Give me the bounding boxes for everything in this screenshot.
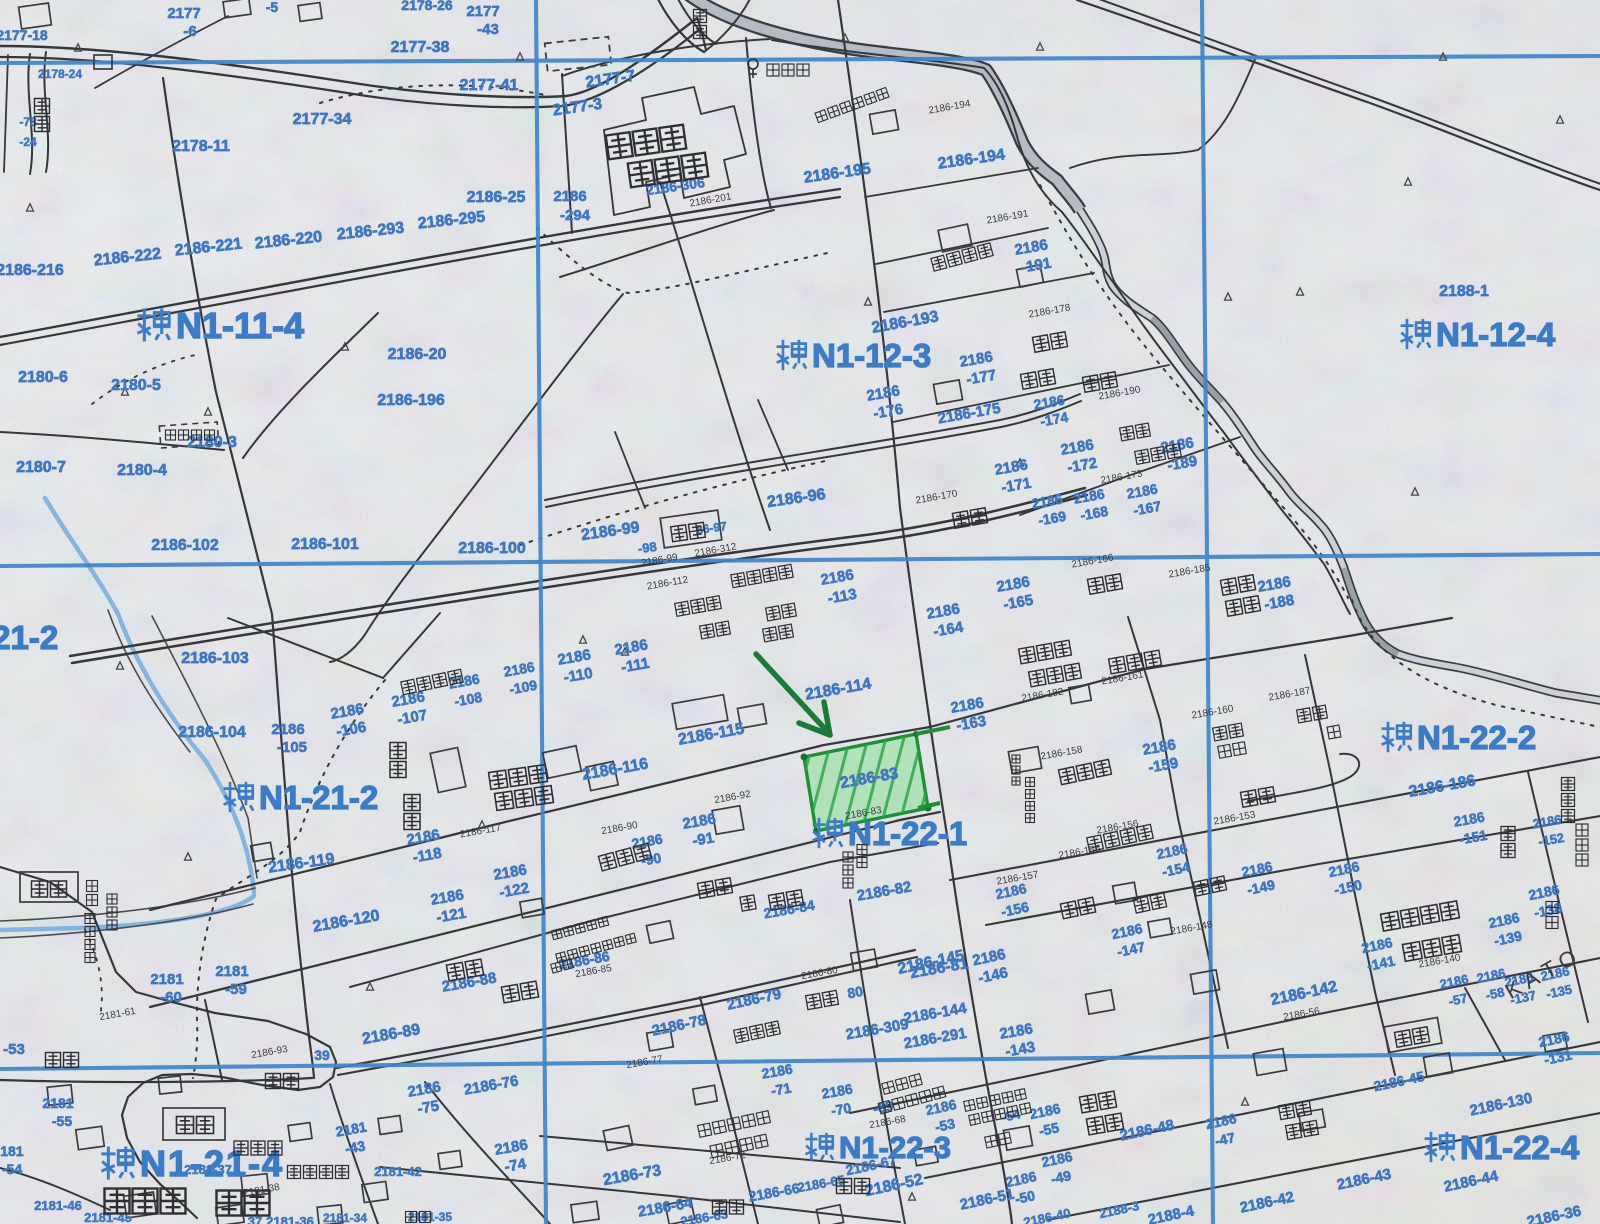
svg-text:2181-45: 2181-45 <box>84 1210 132 1224</box>
svg-text:2177-18: 2177-18 <box>0 27 48 43</box>
svg-text:-43: -43 <box>477 21 499 38</box>
svg-text:2180-5: 2180-5 <box>111 377 161 394</box>
svg-text:2181-36: 2181-36 <box>266 1214 314 1224</box>
svg-text:2181: 2181 <box>42 1095 73 1111</box>
svg-text:N1-12-4: N1-12-4 <box>1436 316 1556 353</box>
svg-text:2186: 2186 <box>271 721 304 738</box>
svg-text:2186-103: 2186-103 <box>181 650 249 667</box>
svg-text:2186-216: 2186-216 <box>0 262 64 279</box>
svg-text:2181: 2181 <box>0 1143 24 1159</box>
svg-text:2178-11: 2178-11 <box>172 138 230 155</box>
svg-text:2178-24: 2178-24 <box>38 67 82 81</box>
svg-text:2177-38: 2177-38 <box>391 39 450 56</box>
svg-text:2181-34: 2181-34 <box>323 1211 367 1224</box>
svg-text:2188-1: 2188-1 <box>1439 283 1489 300</box>
svg-text:2180-4: 2180-4 <box>117 462 167 479</box>
svg-text:-294: -294 <box>560 207 591 224</box>
svg-text:2177-41: 2177-41 <box>460 77 519 94</box>
svg-text:2186-100: 2186-100 <box>458 540 526 557</box>
svg-text:2180-6: 2180-6 <box>18 369 68 386</box>
svg-text:2181-37: 2181-37 <box>184 1162 232 1177</box>
svg-text:-54: -54 <box>2 1161 22 1177</box>
svg-text:-6: -6 <box>183 23 196 40</box>
svg-text:2186-196: 2186-196 <box>377 392 445 409</box>
svg-text:-53: -53 <box>3 1041 25 1058</box>
svg-text:2181-42: 2181-42 <box>374 1164 422 1179</box>
svg-text:-55: -55 <box>52 1113 72 1129</box>
svg-text:N1-21-2: N1-21-2 <box>259 779 378 816</box>
svg-text:2186: 2186 <box>553 188 586 205</box>
svg-text:2178-26: 2178-26 <box>401 0 453 13</box>
svg-text:-5: -5 <box>266 0 279 15</box>
svg-text:2186-20: 2186-20 <box>388 346 447 363</box>
svg-text:2180-3: 2180-3 <box>187 434 237 451</box>
svg-text:2177: 2177 <box>466 3 499 20</box>
svg-text:N1-22-4: N1-22-4 <box>1460 1129 1580 1166</box>
svg-text:2186-102: 2186-102 <box>151 537 219 554</box>
svg-text:2177: 2177 <box>167 5 200 22</box>
svg-text:-59: -59 <box>225 981 247 998</box>
svg-text:2177-34: 2177-34 <box>293 111 352 128</box>
svg-text:2186-104: 2186-104 <box>178 724 246 741</box>
svg-text:N1-22-1: N1-22-1 <box>848 815 967 852</box>
svg-text:-24: -24 <box>19 135 37 149</box>
svg-text:2186-101: 2186-101 <box>291 536 359 553</box>
svg-text:N1-11-4: N1-11-4 <box>176 305 304 346</box>
svg-text:2181-46: 2181-46 <box>34 1198 82 1213</box>
svg-text:-60: -60 <box>160 989 182 1006</box>
svg-text:-105: -105 <box>277 739 307 756</box>
svg-text:80: 80 <box>846 983 864 1001</box>
svg-text:N1-12-3: N1-12-3 <box>812 337 931 374</box>
svg-text:2181: 2181 <box>150 971 183 988</box>
svg-text:39: 39 <box>314 1047 330 1063</box>
svg-text:2180-7: 2180-7 <box>16 459 66 476</box>
svg-text:2186-25: 2186-25 <box>467 189 526 206</box>
svg-text:N1-21-2: N1-21-2 <box>0 619 58 656</box>
svg-text:N1-22-2: N1-22-2 <box>1417 719 1536 756</box>
svg-text:2181: 2181 <box>215 963 248 980</box>
svg-text:-98: -98 <box>637 539 658 556</box>
